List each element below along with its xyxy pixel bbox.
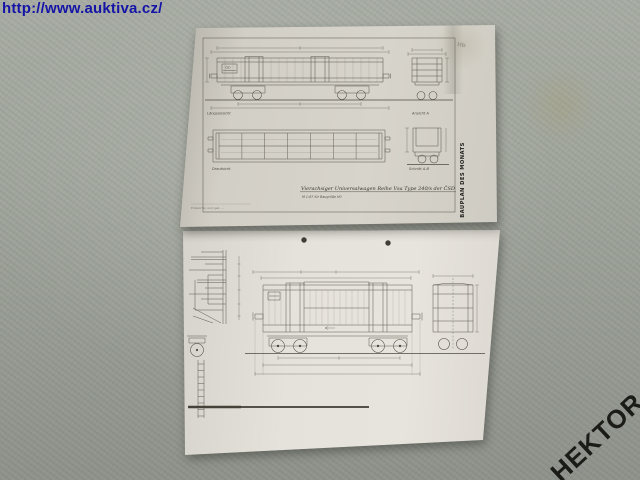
bottom-blueprint-sheet — [183, 228, 500, 455]
drawing-credit-note: Entworfen und gez. ... — [191, 206, 224, 210]
punch-hole — [385, 240, 390, 245]
seller-watermark-hektor: HEKTOR — [545, 391, 640, 480]
wall-section-detail-drawing — [187, 250, 241, 418]
punch-hole — [301, 237, 306, 242]
end-view-drawing: Ansicht A — [408, 48, 449, 116]
wagon-side-elevation-drawing — [253, 270, 422, 376]
drawing-scale-note: M 1:87 für Baugröße H0 — [302, 195, 342, 199]
wagon-end-view-drawing — [433, 274, 479, 350]
title-block: Vierachsiger Universalwagen Reihe Vsa Ty… — [191, 184, 456, 210]
pencil-note: Hb — [457, 42, 466, 49]
background-stain — [522, 64, 600, 146]
side-view-label: Längsansicht — [207, 112, 231, 116]
auction-url-watermark: http://www.auktiva.cz/ — [2, 0, 163, 17]
side-view-drawing: ČSD Längsansicht — [205, 46, 391, 116]
bottom-sheet-drawing — [183, 228, 500, 455]
section-view-drawing: Schnitt A-B — [405, 128, 449, 171]
drawing-title: Vierachsiger Universalwagen Reihe Vsa Ty… — [301, 184, 455, 192]
bauplan-des-monats-banner: BAUPLAN DES MONATS — [460, 142, 466, 218]
top-sheet-drawing: ČSD Längsansicht Ansicht A — [175, 24, 500, 234]
top-sheet-paper: ČSD Längsansicht Ansicht A — [175, 24, 500, 234]
wagon-marking-text: ČSD — [225, 65, 230, 70]
bottom-sheet-paper — [183, 228, 500, 455]
auction-photo-background: ČSD Längsansicht Ansicht A — [0, 0, 640, 480]
end-view-label: Ansicht A — [411, 112, 429, 116]
section-view-label: Schnitt A-B — [409, 167, 430, 171]
plan-view-label: Draufsicht — [212, 167, 231, 171]
plan-view-drawing: Draufsicht — [208, 130, 390, 171]
top-blueprint-sheet: ČSD Längsansicht Ansicht A — [175, 24, 500, 234]
